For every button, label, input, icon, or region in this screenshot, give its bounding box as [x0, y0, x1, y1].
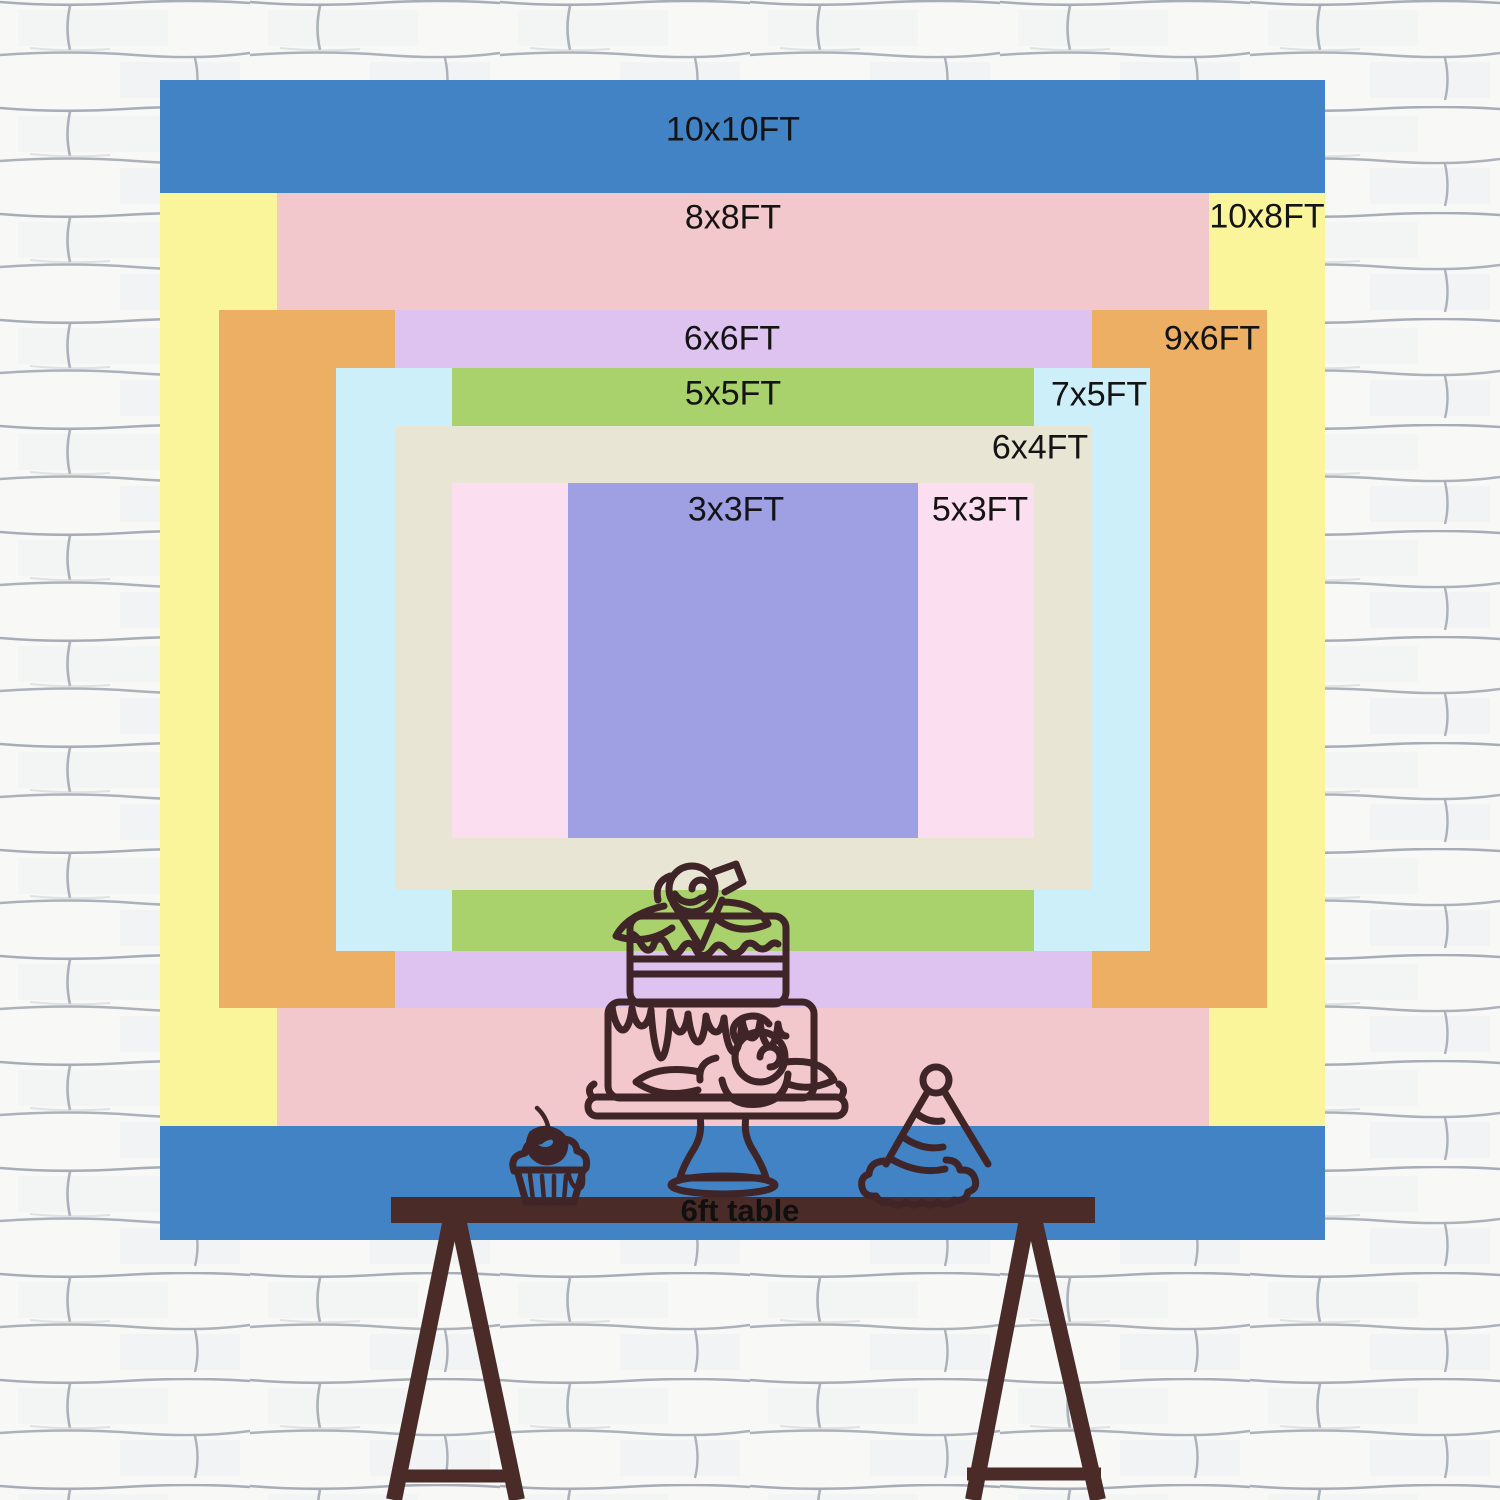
- table-label: 6ft table: [681, 1193, 800, 1229]
- size-label-3x3ft: 3x3FT: [688, 491, 784, 530]
- size-label-5x3ft: 5x3FT: [932, 491, 1028, 530]
- size-label-8x8ft: 8x8FT: [685, 199, 781, 238]
- size-labels: 10x10FT10x8FT8x8FT9x6FT6x6FT7x5FT5x5FT6x…: [0, 0, 1500, 1500]
- size-label-10x10ft: 10x10FT: [666, 111, 800, 150]
- size-label-9x6ft: 9x6FT: [1164, 320, 1260, 359]
- size-label-5x5ft: 5x5FT: [685, 375, 781, 414]
- size-label-10x8ft: 10x8FT: [1209, 198, 1324, 237]
- backdrop-size-chart: 10x10FT10x8FT8x8FT9x6FT6x6FT7x5FT5x5FT6x…: [0, 0, 1500, 1500]
- size-label-6x4ft: 6x4FT: [992, 429, 1088, 468]
- size-label-6x6ft: 6x6FT: [684, 320, 780, 359]
- size-label-7x5ft: 7x5FT: [1051, 376, 1147, 415]
